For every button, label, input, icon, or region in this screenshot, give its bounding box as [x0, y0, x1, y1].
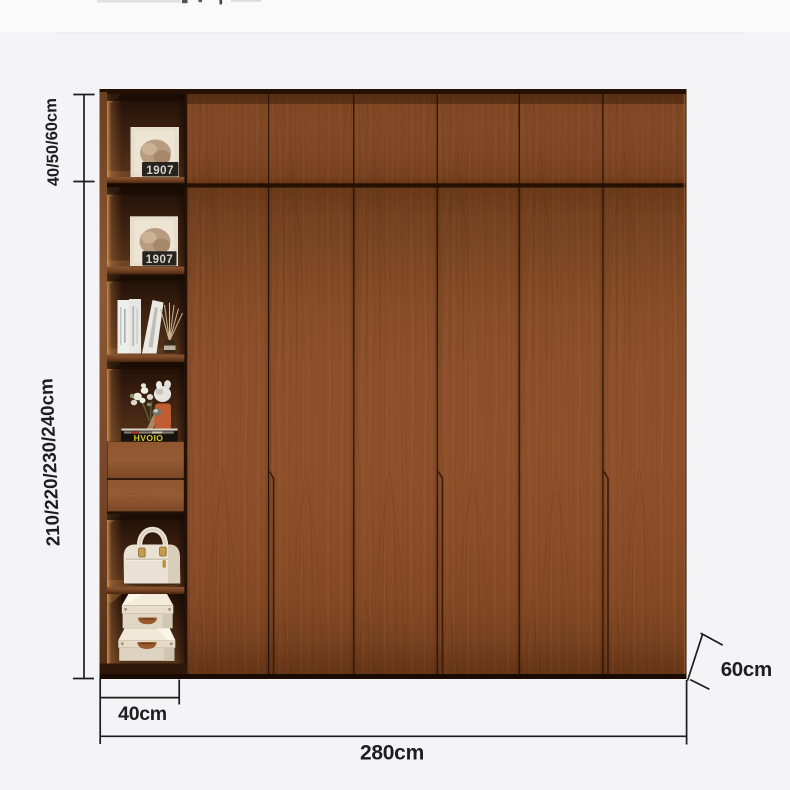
svg-text:1907: 1907	[146, 254, 174, 266]
svg-text:280cm: 280cm	[360, 741, 424, 764]
svg-text:1907: 1907	[146, 165, 174, 177]
svg-text:HVOIO: HVOIO	[134, 433, 164, 443]
svg-text:40/50/60cm: 40/50/60cm	[42, 98, 63, 187]
svg-text:60cm: 60cm	[721, 658, 772, 681]
svg-text:40cm: 40cm	[118, 703, 167, 725]
